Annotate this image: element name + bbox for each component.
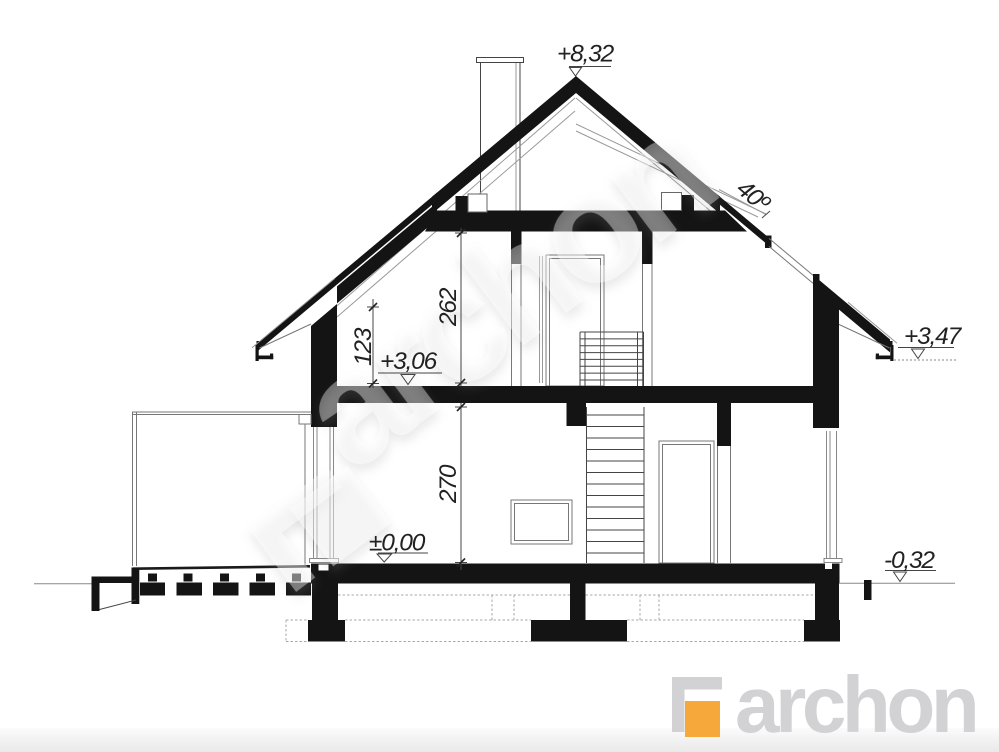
svg-text:±0,00: ±0,00 [369,530,426,557]
svg-text:archon: archon [735,660,975,749]
svg-text:+3,06: +3,06 [380,348,438,375]
svg-text:+3,47: +3,47 [904,323,963,350]
svg-text:+8,32: +8,32 [557,41,615,68]
svg-text:270: 270 [435,464,462,504]
svg-text:-0,32: -0,32 [884,547,935,574]
svg-text:262: 262 [435,287,462,327]
svg-text:123: 123 [350,327,377,366]
